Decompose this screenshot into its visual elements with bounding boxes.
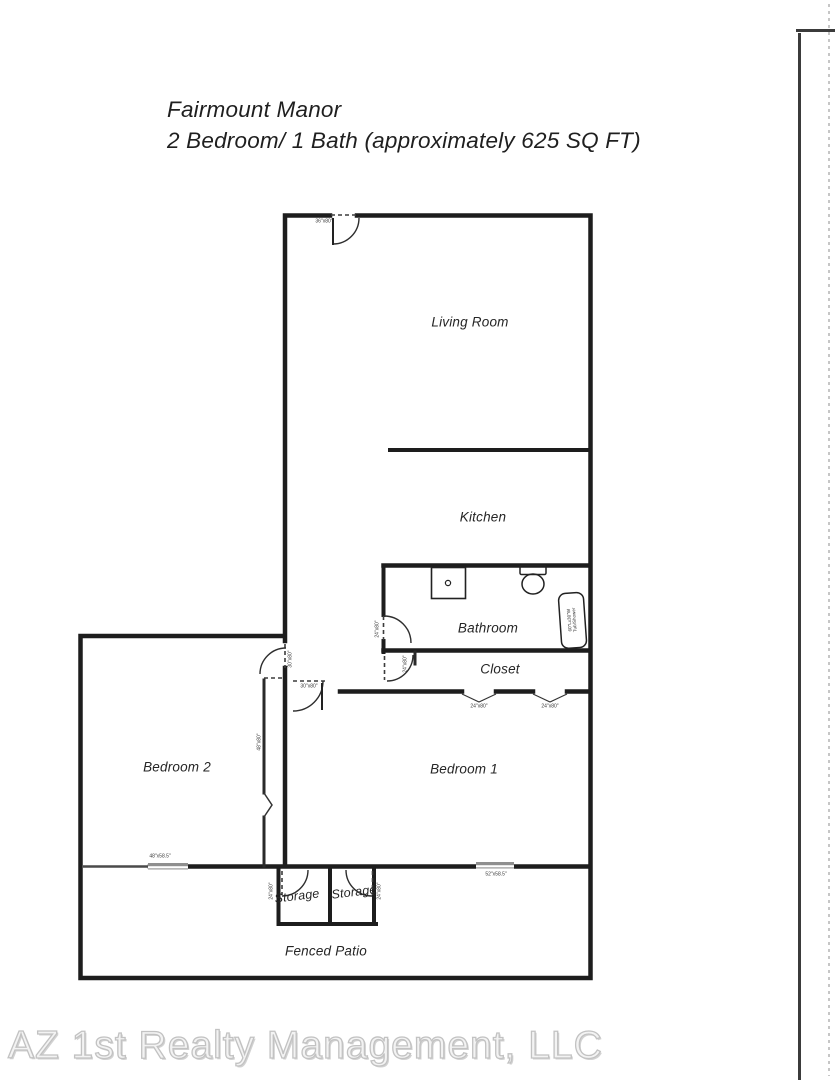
bathroom-fixtures bbox=[432, 566, 587, 649]
footer-company: AZ 1st Realty Management, LLC bbox=[8, 1024, 603, 1068]
dim-storage1-door: 24"x80" bbox=[270, 882, 275, 899]
door-openings bbox=[264, 215, 385, 895]
tub-label: 60"Lx30"W Tub/Shower bbox=[566, 607, 578, 632]
room-label-living-room: Living Room bbox=[431, 315, 508, 330]
window-bedroom1 bbox=[476, 861, 514, 871]
dim-closet-bifold-2: 24"x80" bbox=[541, 705, 558, 710]
floorplan-page: Fairmount Manor 2 Bedroom/ 1 Bath (appro… bbox=[0, 0, 835, 1080]
room-label-bathroom: Bathroom bbox=[458, 621, 518, 636]
bifold-closet-1 bbox=[462, 694, 496, 702]
dim-bedroom2-door: 30"x80" bbox=[289, 650, 294, 667]
dim-bedroom2-window: 48"x58.5" bbox=[149, 855, 170, 860]
bifold-door-marks bbox=[264, 694, 567, 817]
dim-bathroom-door: 24"x80" bbox=[376, 620, 381, 637]
floorplan-drawing bbox=[0, 0, 835, 1080]
walls-inner bbox=[279, 450, 591, 924]
door-arc-bathroom bbox=[384, 616, 411, 643]
room-label-bedroom-1: Bedroom 1 bbox=[430, 762, 498, 777]
dim-bedroom1-door: 30"x80" bbox=[300, 685, 317, 690]
door-arc-closet-left bbox=[387, 655, 413, 681]
room-label-closet: Closet bbox=[480, 662, 519, 677]
toilet bbox=[520, 566, 546, 595]
dim-entry-door: 36"x80" bbox=[315, 220, 332, 225]
dim-bedroom2-closet-door: 48"x80" bbox=[258, 733, 263, 750]
dim-closet-bifold-1: 24"x80" bbox=[470, 705, 487, 710]
door-panels bbox=[322, 218, 333, 710]
door-arc-bedroom2 bbox=[260, 648, 286, 674]
door-arc-entry bbox=[333, 218, 359, 244]
bifold-bedroom2-closet bbox=[264, 793, 272, 817]
bifold-closet-2 bbox=[533, 694, 567, 702]
window-bedroom2 bbox=[148, 862, 188, 872]
sink bbox=[432, 568, 466, 599]
dim-closet-left-door: 24"x80" bbox=[404, 655, 409, 672]
dim-storage2-door: 24"x80" bbox=[378, 882, 383, 899]
room-label-fenced-patio: Fenced Patio bbox=[285, 944, 367, 959]
room-label-kitchen: Kitchen bbox=[460, 510, 506, 525]
dim-bedroom1-window: 52"x58.5" bbox=[485, 873, 506, 878]
room-label-bedroom-2: Bedroom 2 bbox=[143, 760, 211, 775]
